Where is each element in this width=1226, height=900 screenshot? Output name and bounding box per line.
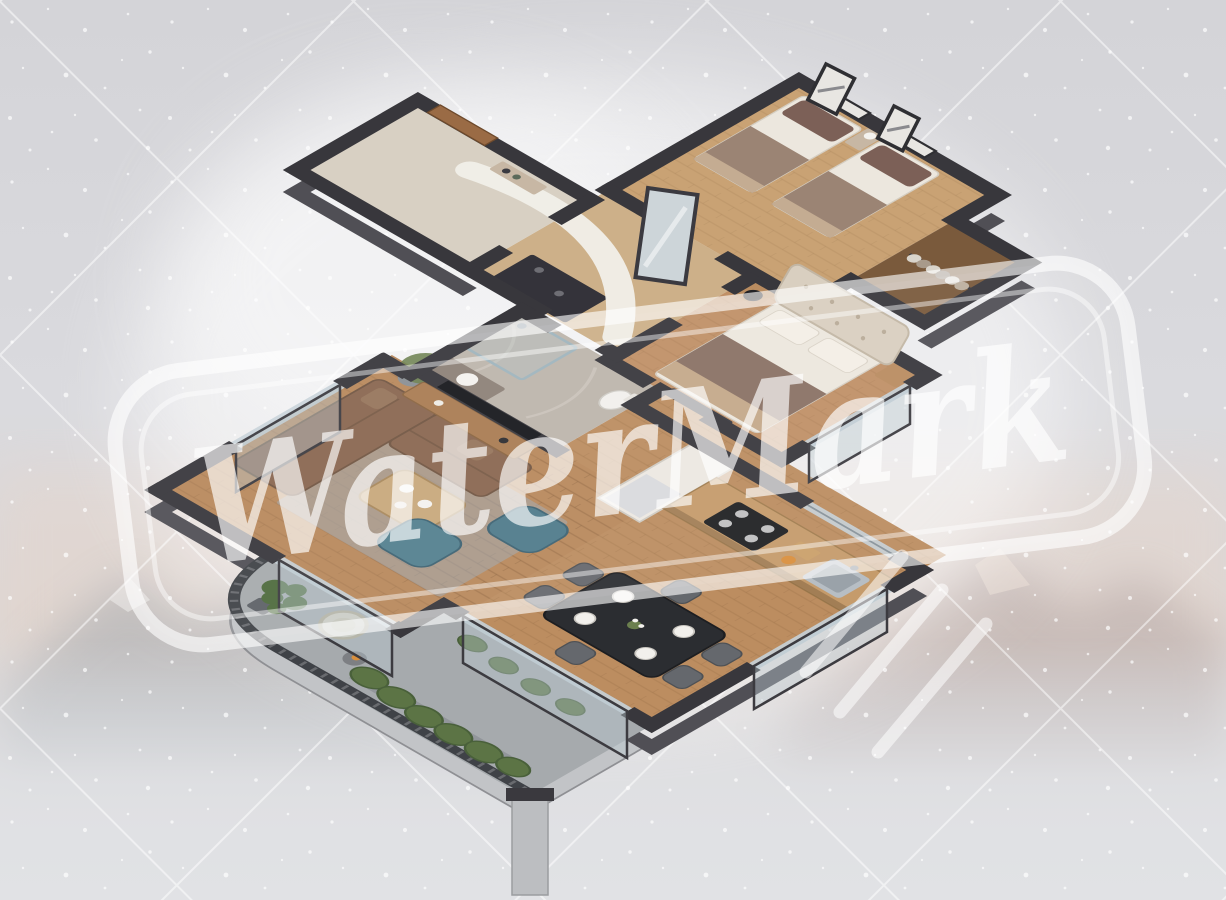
floorplan-render: WaterMark: [0, 0, 1226, 900]
scene-canvas: WaterMark: [0, 0, 1226, 900]
support-pillar: [506, 788, 554, 895]
hall-mirror: [635, 188, 697, 284]
